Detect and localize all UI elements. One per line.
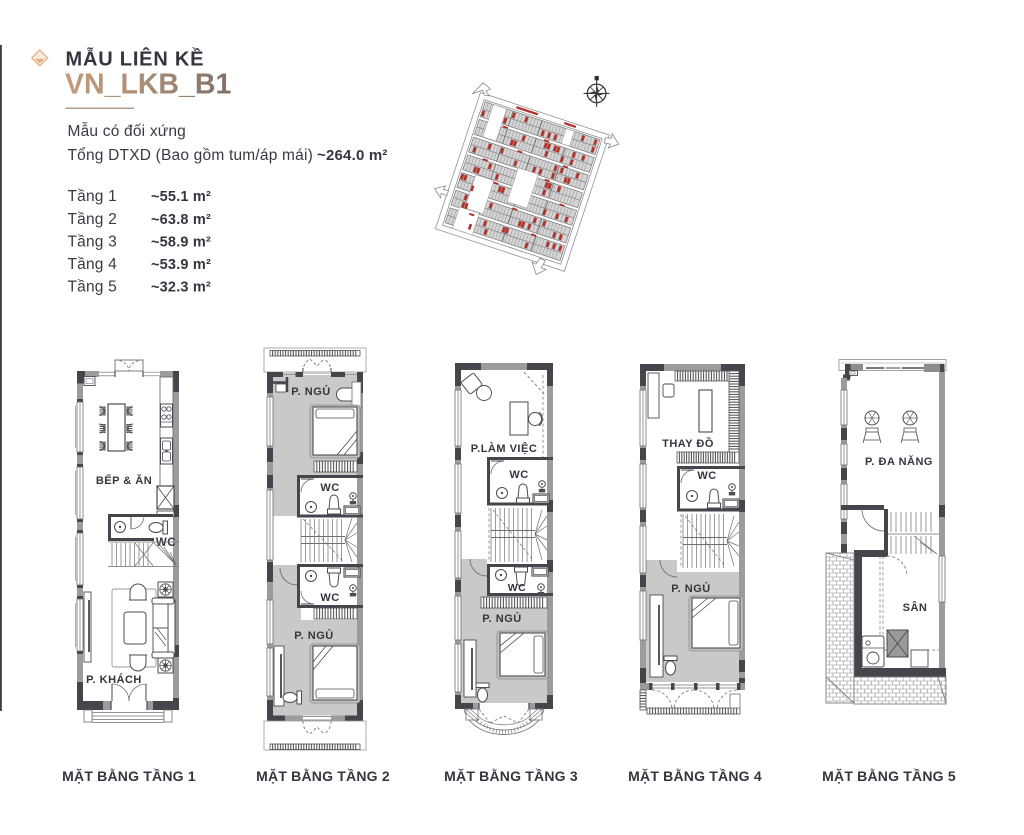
svg-text:SÂN: SÂN [903,601,928,614]
svg-text:Tầng 2: Tầng 2 [68,211,117,228]
svg-text:~63.8 m²: ~63.8 m² [151,212,211,228]
svg-text:WC: WC [697,470,716,482]
svg-text:MẶT BẰNG TẦNG 2: MẶT BẰNG TẦNG 2 [256,767,390,784]
svg-text:~55.1 m²: ~55.1 m² [151,189,211,205]
svg-text:WC: WC [320,482,339,494]
svg-text:WC: WC [156,537,176,549]
svg-text:~53.9 m²: ~53.9 m² [151,257,211,273]
svg-text:P. NGỦ: P. NGỦ [671,582,710,595]
svg-text:P. NGỦ: P. NGỦ [294,629,333,642]
svg-text:P. NGỦ: P. NGỦ [291,385,330,398]
svg-text:WC: WC [320,592,339,604]
svg-text:WC: WC [508,582,527,594]
svg-text:WC: WC [509,469,528,481]
svg-text:~32.3 m²: ~32.3 m² [151,280,211,296]
svg-text:Tầng 1: Tầng 1 [68,188,117,205]
svg-text:THAY ĐỒ: THAY ĐỒ [662,437,714,450]
svg-text:MẶT BẰNG TẦNG 5: MẶT BẰNG TẦNG 5 [822,767,956,784]
svg-text:MẶT BẰNG TẦNG 3: MẶT BẰNG TẦNG 3 [444,767,578,784]
svg-text:~58.9 m²: ~58.9 m² [151,235,211,251]
svg-text:Tầng 5: Tầng 5 [68,279,117,296]
svg-text:Tầng 4: Tầng 4 [68,256,118,273]
svg-text:MẶT BẰNG TẦNG 1: MẶT BẰNG TẦNG 1 [62,767,196,784]
svg-text:VN_LKB_B1: VN_LKB_B1 [65,69,231,101]
svg-text:BẾP & ĂN: BẾP & ĂN [96,474,152,487]
svg-text:P. ĐA NĂNG: P. ĐA NĂNG [865,455,933,468]
svg-text:Tầng 3: Tầng 3 [68,234,117,251]
svg-text:P. NGỦ: P. NGỦ [482,612,521,625]
svg-text:MẪU LIÊN KỀ: MẪU LIÊN KỀ [66,46,205,70]
svg-text:Tổng DTXD (Bao gồm tum/áp mái): Tổng DTXD (Bao gồm tum/áp mái) [68,147,313,164]
svg-text:~264.0 m²: ~264.0 m² [317,147,388,164]
svg-text:P.LÀM VIỆC: P.LÀM VIỆC [471,442,538,455]
svg-text:Mẫu có đối xứng: Mẫu có đối xứng [68,123,187,140]
svg-text:MẶT BẰNG TẦNG 4: MẶT BẰNG TẦNG 4 [628,767,762,784]
